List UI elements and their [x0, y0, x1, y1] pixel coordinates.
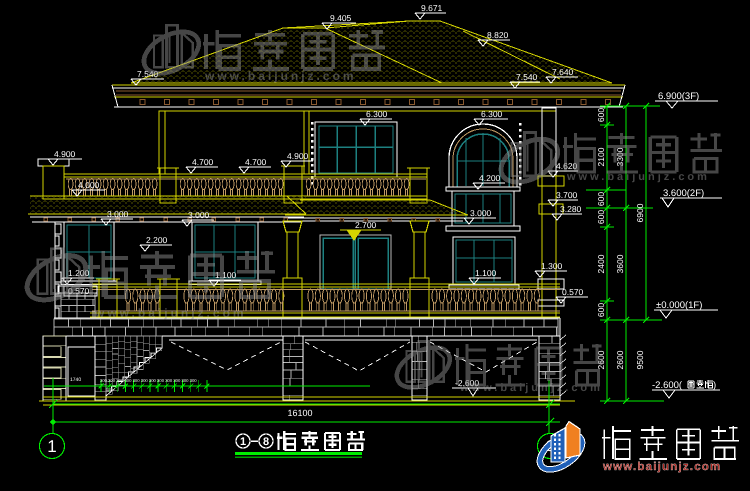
svg-text:1740: 1740 [70, 377, 81, 383]
svg-text:): ) [713, 380, 716, 391]
svg-text:4.700: 4.700 [192, 157, 214, 167]
svg-text:2.200: 2.200 [146, 235, 168, 245]
svg-text:-2.600(: -2.600( [652, 380, 683, 391]
svg-text:7.540: 7.540 [516, 72, 538, 82]
svg-text:1.100: 1.100 [475, 268, 497, 278]
svg-text:0.570: 0.570 [562, 287, 584, 297]
svg-text:1.300: 1.300 [541, 261, 563, 271]
svg-text:www.baijunjz.com: www.baijunjz.com [459, 382, 603, 394]
svg-text:www.baijunjz.com: www.baijunjz.com [204, 69, 357, 83]
svg-text:2600: 2600 [615, 350, 625, 369]
svg-text:www.baijunjz.com: www.baijunjz.com [602, 461, 721, 473]
svg-text:www.baijunjz.com: www.baijunjz.com [566, 171, 710, 183]
svg-text:8.820: 8.820 [487, 30, 509, 40]
svg-text:4.700: 4.700 [245, 157, 267, 167]
svg-text:6.900(3F): 6.900(3F) [658, 91, 699, 102]
svg-text:3.280: 3.280 [560, 204, 582, 214]
svg-text:4.900: 4.900 [54, 149, 76, 159]
svg-text:3.000: 3.000 [470, 208, 492, 218]
svg-text:4.900: 4.900 [287, 151, 309, 161]
svg-text:600: 600 [596, 303, 606, 317]
svg-text:9500: 9500 [635, 350, 645, 369]
svg-text:3.700: 3.700 [556, 190, 578, 200]
svg-text:4.200: 4.200 [479, 173, 501, 183]
svg-text:4.000: 4.000 [78, 180, 100, 190]
svg-text:7.640: 7.640 [552, 67, 574, 77]
svg-text:3600: 3600 [615, 254, 625, 273]
svg-text:6900: 6900 [635, 203, 645, 222]
svg-text:3.000: 3.000 [107, 209, 129, 219]
svg-text:6.300: 6.300 [481, 109, 503, 119]
svg-text:1: 1 [47, 437, 56, 456]
svg-text:www.baijunjz.com: www.baijunjz.com [94, 306, 247, 320]
svg-text:300 300 300 300 300 300 300 30: 300 300 300 300 300 300 300 300 300 300 … [100, 378, 197, 383]
svg-text:600: 600 [596, 108, 606, 122]
svg-text:3.000: 3.000 [188, 210, 210, 220]
svg-text:9.671: 9.671 [421, 3, 443, 13]
svg-text:1: 1 [240, 436, 246, 448]
svg-text:2400: 2400 [596, 254, 606, 273]
svg-text:9.405: 9.405 [330, 13, 352, 23]
svg-text:±0.000(1F): ±0.000(1F) [656, 300, 702, 311]
svg-text:2100: 2100 [596, 147, 606, 166]
svg-text:600: 600 [596, 192, 606, 206]
svg-text:16100: 16100 [287, 408, 312, 418]
svg-text:3.600(2F): 3.600(2F) [663, 188, 704, 199]
svg-text:2.700: 2.700 [355, 220, 377, 230]
svg-text:600: 600 [596, 210, 606, 224]
svg-text:6.300: 6.300 [366, 109, 388, 119]
svg-text:8: 8 [263, 436, 269, 448]
